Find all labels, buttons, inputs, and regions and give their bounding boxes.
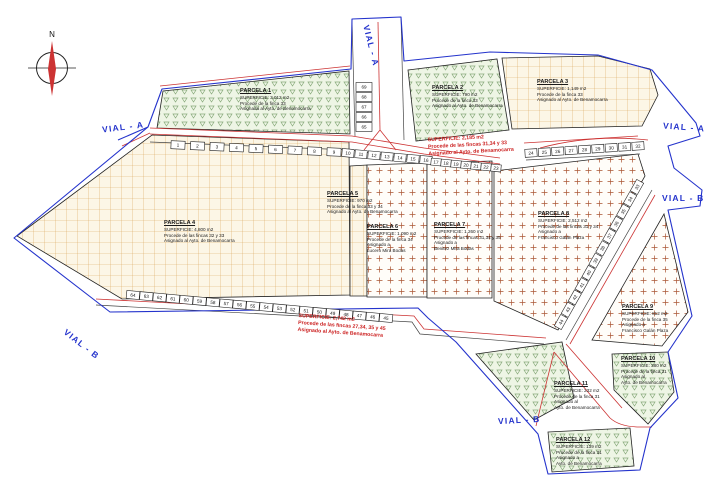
parcel-info-line: Ayto. de Benamocarra — [554, 405, 600, 411]
lot-number: 28 — [582, 147, 588, 152]
lot-21[interactable]: 21 — [471, 162, 482, 170]
parcel-5-label: PARCELA 5SUPERFICIE: 970 m2Procede de la… — [327, 191, 398, 215]
lot-number: 31 — [622, 144, 628, 149]
lot-number: 18 — [443, 160, 449, 166]
parcel-name: PARCELA 3 — [537, 79, 608, 86]
lot-64[interactable]: 64 — [126, 290, 140, 299]
lot-number: 52 — [290, 307, 296, 312]
parcel-info-line: Francisco Galán Plaza — [622, 328, 668, 334]
lot-60[interactable]: 60 — [179, 295, 193, 304]
lot-number: 20 — [463, 162, 469, 168]
parcel-plan: 123456789 10111213141516 17181920212223 … — [0, 0, 711, 485]
lot-number: 68 — [361, 95, 367, 100]
parcel-1-label: PARCELA 1SUPERFICIE: 3,012 m2Procede de … — [240, 88, 311, 112]
parcel-info-line: Asignado al Ayto. de Benamocarra — [432, 103, 503, 109]
parcel-name: PARCELA 1 — [240, 88, 311, 95]
lot-number: 67 — [361, 105, 367, 110]
lot-number: 27 — [568, 148, 574, 153]
lot-57[interactable]: 57 — [219, 299, 233, 308]
parcel-info-line: SUPERFICIE: 812 m2 — [622, 311, 668, 317]
lot-number: 54 — [263, 305, 269, 310]
road-line — [352, 19, 355, 136]
lot-53[interactable]: 53 — [273, 304, 287, 313]
parcel-info-line: Ayto. de Benamocarra — [621, 380, 667, 386]
lot-29[interactable]: 29 — [592, 144, 604, 153]
lot-number: 64 — [130, 292, 136, 297]
lot-number: 60 — [183, 297, 189, 302]
lot-5[interactable]: 5 — [249, 144, 263, 153]
lot-62[interactable]: 62 — [153, 293, 167, 302]
lot-number: 62 — [157, 295, 163, 300]
lot-66[interactable]: 66 — [356, 113, 372, 122]
parcel-name: PARCELA 8 — [538, 211, 598, 218]
parcel-12-label: PARCELA 12SUPERFICIE: 139 m2Procede de l… — [556, 437, 602, 467]
lot-strip-center-vertical: 6968676665 — [356, 83, 372, 132]
parcel-4-label: PARCELA 4SUPERFICIE: 4,800 m2Procede de … — [164, 220, 235, 244]
parcel-name: PARCELA 12 — [556, 437, 602, 444]
lot-52[interactable]: 52 — [286, 305, 300, 314]
parcel-name: PARCELA 11 — [554, 381, 600, 388]
parcel-7-label: PARCELA 7SUPERFICIE: 1,260 m2Procede de … — [434, 222, 501, 252]
lot-59[interactable]: 59 — [193, 296, 207, 305]
parcel-2-label: PARCELA 2SUPERFICIE: 790 m2Procede de la… — [432, 85, 503, 109]
parcel-4-area[interactable] — [17, 135, 350, 299]
lot-30[interactable]: 30 — [605, 143, 617, 152]
lot-number: 25 — [542, 150, 548, 155]
lot-32[interactable]: 32 — [632, 142, 644, 151]
parcel-5-area[interactable] — [350, 165, 367, 296]
parcel-6-label: PARCELA 6SUPERFICIE: 1,090 m2Procede de … — [367, 224, 416, 254]
lot-number: 66 — [361, 115, 367, 120]
road-line — [524, 136, 638, 143]
lot-63[interactable]: 63 — [139, 292, 153, 301]
parcel-8-label: PARCELA 8SUPERFICIE: 2,512 m2Procede de … — [538, 211, 598, 241]
lot-15[interactable]: 15 — [407, 154, 420, 163]
lot-56[interactable]: 56 — [233, 300, 247, 309]
lot-number: 12 — [371, 153, 377, 158]
parcel-info-line: SUPERFICIE: 232 m2 — [554, 388, 600, 394]
parcel-3-label: PARCELA 3SUPERFICIE: 1,149 m2Procede de … — [537, 79, 608, 103]
lot-number: 58 — [210, 300, 216, 305]
lot-14[interactable]: 14 — [394, 153, 407, 162]
lot-number: 22 — [483, 164, 489, 170]
lot-58[interactable]: 58 — [206, 298, 220, 307]
lot-61[interactable]: 61 — [166, 294, 180, 303]
north-needle-icon — [48, 41, 56, 96]
parcel-name: PARCELA 5 — [327, 191, 398, 198]
vial-b-label-right: VIAL - B — [662, 193, 705, 203]
lot-number: 19 — [453, 161, 459, 167]
lot-12[interactable]: 12 — [368, 151, 381, 160]
lot-number: 30 — [609, 145, 615, 150]
lot-25[interactable]: 25 — [538, 148, 550, 157]
lot-number: 14 — [397, 155, 403, 160]
lot-number: 32 — [635, 144, 641, 149]
lot-number: 53 — [277, 306, 283, 311]
parcel-info-line: Benitez Mira Bodas — [434, 246, 501, 252]
parcel-name: PARCELA 7 — [434, 222, 501, 229]
lot-number: 13 — [384, 154, 390, 159]
lot-2[interactable]: 2 — [190, 142, 204, 151]
lot-1[interactable]: 1 — [171, 141, 185, 150]
lot-13[interactable]: 13 — [381, 152, 394, 161]
lot-28[interactable]: 28 — [578, 145, 590, 154]
lot-11[interactable]: 11 — [355, 150, 368, 159]
lot-number: 65 — [361, 125, 367, 130]
lot-number: 21 — [473, 163, 479, 169]
lot-26[interactable]: 26 — [552, 147, 564, 156]
lot-number: 56 — [237, 302, 243, 307]
lot-number: 17 — [433, 159, 439, 165]
lot-68[interactable]: 68 — [356, 93, 372, 102]
parcel-info-line: Ayto. de Benamocarra — [556, 461, 602, 467]
lot-number: 59 — [197, 299, 203, 304]
parcel-info-line: Asignado al Ayto. de Benamocarra — [537, 97, 608, 103]
lot-number: 63 — [144, 294, 150, 299]
lot-19[interactable]: 19 — [451, 160, 462, 168]
lot-55[interactable]: 55 — [246, 301, 260, 310]
lot-number: 57 — [223, 301, 229, 306]
lot-number: 23 — [493, 165, 499, 171]
lot-54[interactable]: 54 — [259, 303, 273, 312]
parcel-info-line: Asignado al Ayto. de Benamocarra — [327, 209, 398, 215]
parcel-name: PARCELA 9 — [622, 304, 668, 311]
parcel-name: PARCELA 2 — [432, 85, 503, 92]
compass-north-label: N — [49, 30, 55, 39]
lot-4[interactable]: 4 — [229, 143, 243, 152]
lot-27[interactable]: 27 — [565, 146, 577, 155]
lot-20[interactable]: 20 — [461, 161, 472, 169]
lot-strip-top-b: 10111213141516 — [342, 148, 433, 164]
lot-65[interactable]: 65 — [356, 123, 372, 132]
parcel-info-line: SUPERFICIE: 139 m2 — [556, 444, 602, 450]
lot-7[interactable]: 7 — [288, 146, 302, 155]
parcel-9-label: PARCELA 9SUPERFICIE: 812 m2Procede de la… — [622, 304, 668, 334]
parcel-10-label: PARCELA 10SUPERFICIE: 380 m2Procede de l… — [621, 356, 667, 386]
lot-24[interactable]: 24 — [525, 149, 537, 158]
parcel-name: PARCELA 6 — [367, 224, 416, 231]
compass: N — [28, 30, 76, 96]
lot-67[interactable]: 67 — [356, 103, 372, 112]
parcel-info-line: Lucero Mira Bodas — [367, 248, 416, 254]
parcel-info-line: SUPERFICIE: 1,090 m2 — [367, 231, 416, 237]
lot-number: 61 — [170, 296, 176, 301]
lot-10[interactable]: 10 — [342, 148, 355, 157]
parcel-info-line: Asignado al Ayto. de Benamocarra — [164, 238, 235, 244]
parcel-info-line: SUPERFICIE: 380 m2 — [621, 363, 667, 369]
lot-18[interactable]: 18 — [441, 159, 452, 167]
lot-number: 15 — [410, 156, 416, 161]
lot-69[interactable]: 69 — [356, 83, 372, 92]
plan-canvas: 123456789 10111213141516 17181920212223 … — [0, 0, 711, 485]
lot-number: 26 — [555, 149, 561, 154]
parcel-11-label: PARCELA 11SUPERFICIE: 232 m2Procede de l… — [554, 381, 600, 411]
lot-number: 29 — [595, 146, 601, 151]
lot-3[interactable]: 3 — [210, 142, 224, 151]
parcel-name: PARCELA 4 — [164, 220, 235, 227]
parcel-name: PARCELA 10 — [621, 356, 667, 363]
lot-number: 11 — [358, 152, 364, 157]
lot-number: 16 — [423, 157, 429, 162]
road-line — [378, 22, 380, 130]
lot-31[interactable]: 31 — [618, 142, 630, 151]
lot-22[interactable]: 22 — [481, 163, 492, 171]
lot-9[interactable]: 9 — [327, 148, 341, 157]
lot-23[interactable]: 23 — [491, 164, 502, 172]
lot-number: 55 — [250, 303, 256, 308]
lot-8[interactable]: 8 — [307, 147, 321, 156]
lot-6[interactable]: 6 — [268, 145, 282, 154]
lot-17[interactable]: 17 — [431, 158, 442, 166]
parcel-info-line: Francisco Galán Plaza — [538, 235, 598, 241]
lot-number: 69 — [361, 85, 367, 90]
lot-number: 24 — [528, 151, 534, 156]
lot-number: 10 — [345, 150, 351, 155]
parcel-info-line: Asignada al Ayto. de Benamocarra — [240, 106, 311, 112]
